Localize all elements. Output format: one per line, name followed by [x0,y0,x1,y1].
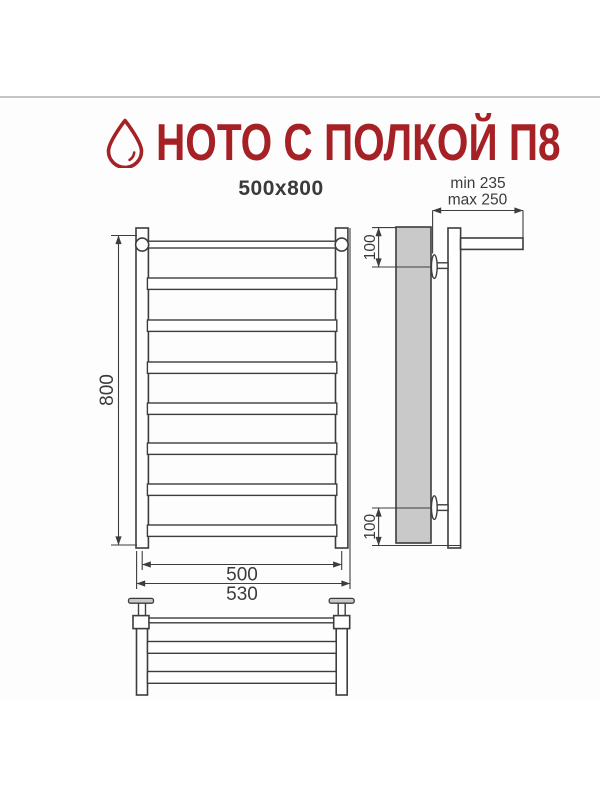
left-bracket-stem [139,603,146,617]
product-drawing-page: НОТО С ПОЛКОЙ П8 500x800 [0,0,600,800]
collector-bar [149,618,334,623]
left-collector-cap [136,238,149,251]
rung [147,443,336,454]
rung [147,525,336,536]
side-view-brackets [431,255,448,520]
dimension-label-height: 800 [97,374,118,406]
right-post [336,228,348,548]
right-shelf-arm [336,628,347,695]
side-view [396,227,523,548]
dimension-label-depth-max: max 250 [448,192,508,209]
rung [147,403,336,414]
rung [147,320,336,331]
left-shelf-arm [137,628,148,695]
top-bracket-flange [431,255,437,279]
right-bracket-stem [338,603,345,617]
rung [147,362,336,373]
shelf-bar [148,642,337,654]
dimension-label-rail-width: 500 [226,565,258,586]
dimension-height-800: 800 [97,236,137,546]
top-view [129,598,355,695]
top-tube [142,241,342,248]
dimension-rail-width-500: 500 [142,551,342,586]
right-collector-cap [335,238,348,251]
right-bracket-cap [329,598,354,603]
right-bracket-block [334,616,350,629]
left-bracket-cap [129,598,154,603]
dimension-label-offset-top: 100 [362,234,379,260]
dimension-label-offset-bottom: 100 [362,513,379,539]
shelf-side-arm [461,238,523,249]
left-bracket-block [133,616,149,629]
bottom-bracket-flange [431,496,437,520]
front-view [136,228,349,548]
vertical-tube [448,228,461,548]
wall-panel [396,227,431,543]
left-post [136,228,148,548]
dimension-label-overall-width: 530 [226,584,258,605]
rung [147,484,336,495]
technical-drawing: 800 500 530 min 235 max 250 100 [0,0,600,800]
dimension-label-depth-min: min 235 [450,175,505,192]
shelf-bar [148,672,337,684]
rung [147,278,336,289]
